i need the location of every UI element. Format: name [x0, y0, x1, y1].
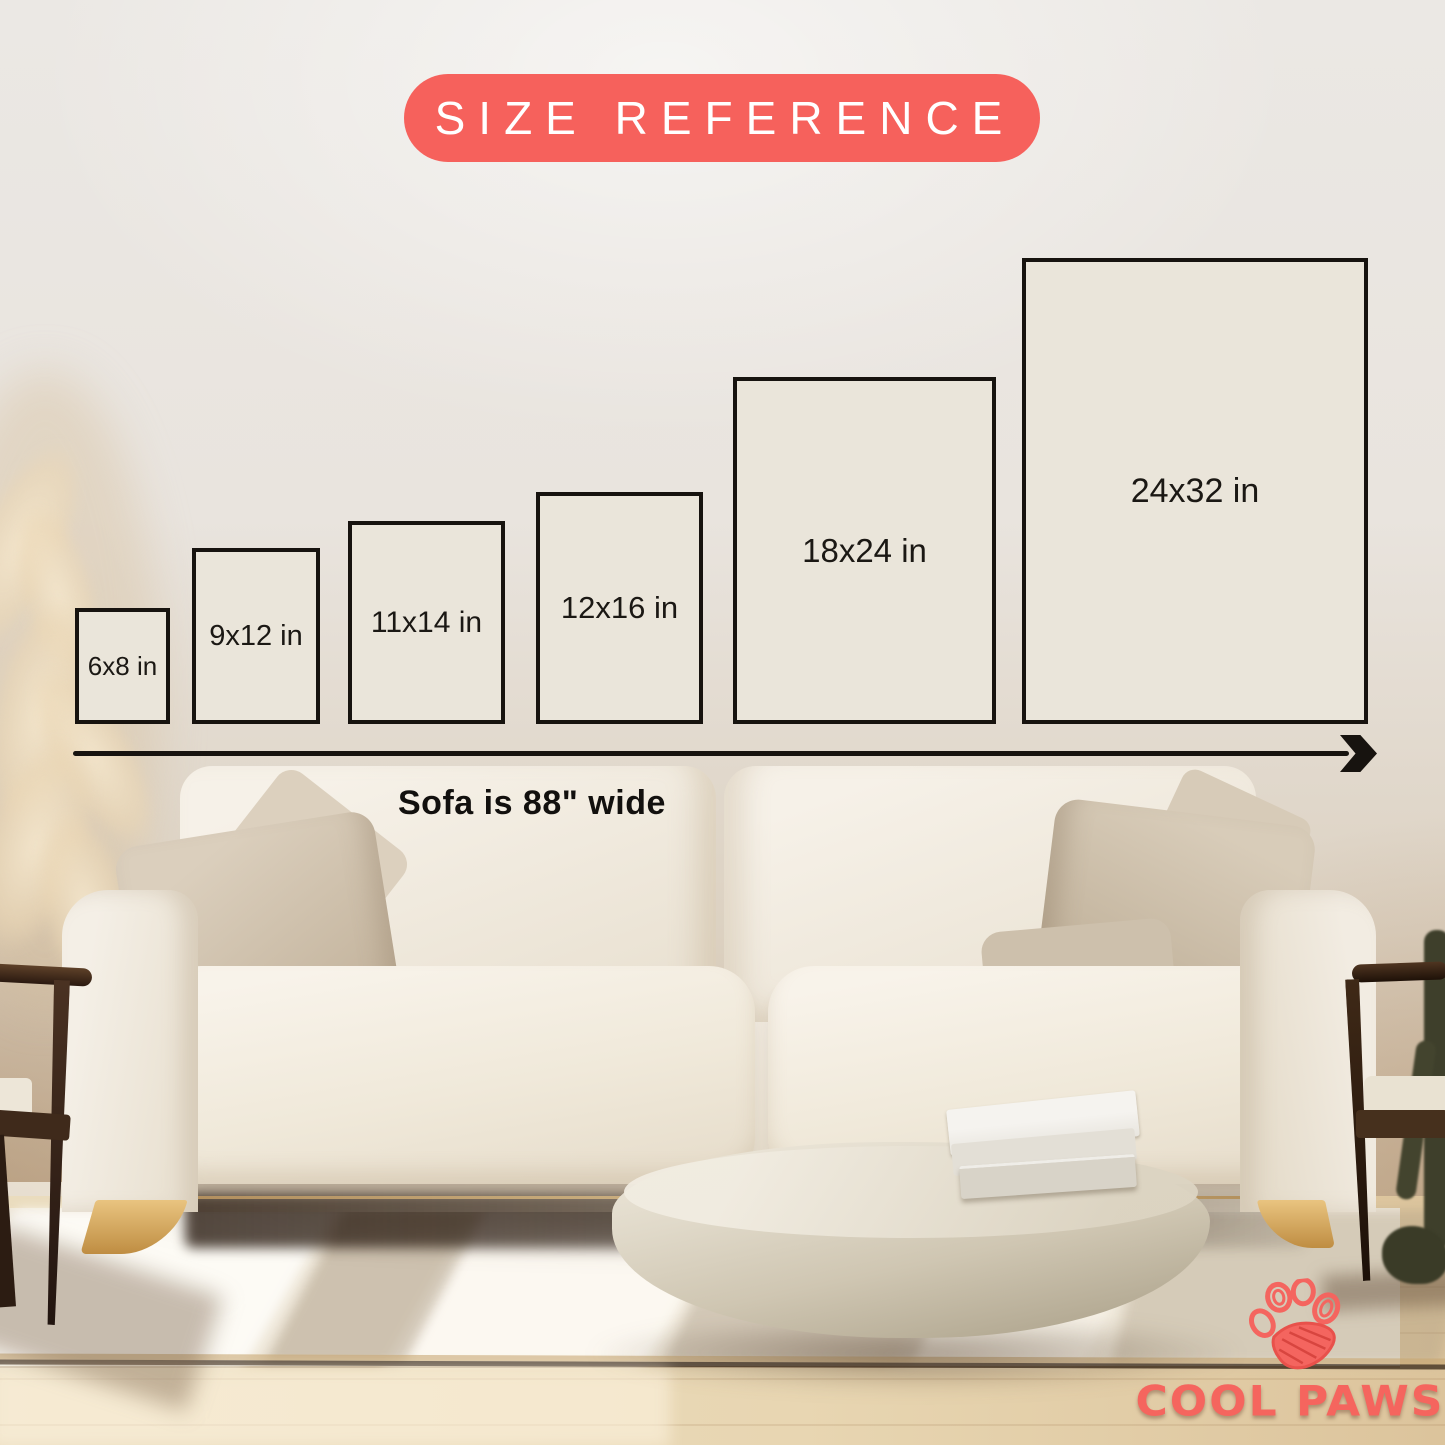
size-frame-9x12: 9x12 in — [192, 548, 320, 724]
size-frame-11x14: 11x14 in — [348, 521, 505, 724]
size-frame-6x8: 6x8 in — [75, 608, 170, 724]
sofa-arm — [62, 890, 198, 1212]
right-chair-armrest — [1352, 961, 1445, 982]
size-label: 6x8 in — [88, 651, 157, 682]
brand-name: COOL PAWS — [1130, 1377, 1445, 1426]
left-chair-rail — [0, 1109, 71, 1141]
size-label: 12x16 in — [561, 590, 678, 626]
size-frame-24x32: 24x32 in — [1022, 258, 1368, 724]
size-label: 11x14 in — [371, 606, 482, 640]
size-frame-12x16: 12x16 in — [536, 492, 703, 724]
title-badge: SIZE REFERENCE — [404, 74, 1040, 162]
size-label: 18x24 in — [802, 532, 927, 570]
sofa-seat-cushion — [155, 966, 755, 1184]
sofa-width-note: Sofa is 88" wide — [398, 784, 666, 823]
right-chair-rail — [1356, 1110, 1445, 1138]
plant — [1382, 1226, 1445, 1284]
size-frame-18x24: 18x24 in — [733, 377, 996, 724]
scale-arrow-line — [73, 751, 1349, 756]
paw-icon — [1238, 1275, 1347, 1380]
title-badge-label: SIZE REFERENCE — [429, 91, 1016, 145]
size-reference-mockup: COOL PAWS SIZE REFERENCE 6x8 in 9x12 in … — [0, 0, 1445, 1445]
size-label: 24x32 in — [1131, 472, 1260, 511]
size-label: 9x12 in — [209, 620, 303, 653]
